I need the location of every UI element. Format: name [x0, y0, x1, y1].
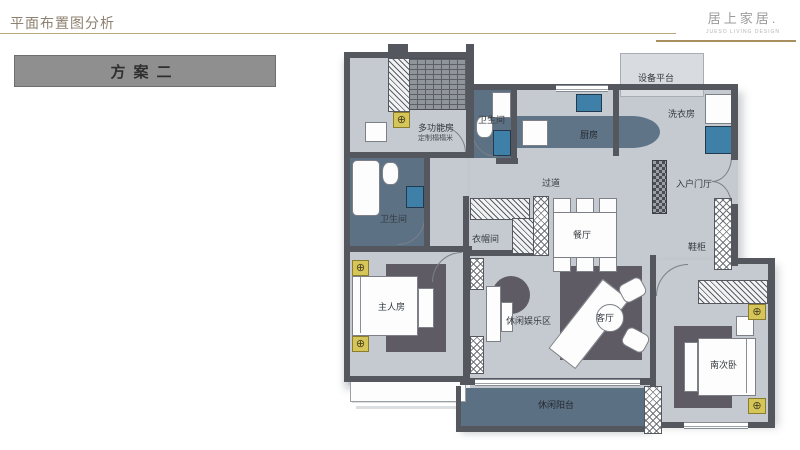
shoe-cabinet [714, 198, 732, 270]
label-balcony: 休闲阳台 [538, 398, 574, 411]
lamp-icon: ⊕ [393, 112, 410, 128]
wall [388, 44, 408, 53]
brand-subtitle: JUESO LIVING DESIGN [688, 29, 798, 35]
balcony-column [644, 386, 662, 434]
cloak-closet [512, 218, 534, 254]
label-laundry: 洗衣房 [668, 107, 695, 120]
sink [493, 130, 511, 156]
cabinet-strip [470, 336, 484, 374]
label-multi-function-sub: 定制榻榻米 [418, 133, 453, 143]
wall [613, 86, 619, 156]
label-kitchen: 厨房 [580, 128, 598, 141]
label-entry-hall: 入户门厅 [676, 177, 712, 190]
label-corridor: 过道 [542, 176, 560, 189]
bathtub [352, 160, 380, 216]
window [475, 379, 640, 386]
label-dining: 餐厅 [573, 228, 591, 241]
partition-screen [652, 160, 667, 214]
wall [456, 386, 461, 430]
slide: 平面布置图分析 居上家居. JUESO LIVING DESIGN 方案二 [0, 0, 800, 450]
wall [463, 196, 469, 256]
window [556, 85, 608, 92]
bench [684, 342, 698, 392]
dining-chair [576, 257, 594, 272]
cloak-closet [470, 198, 530, 220]
wall [496, 158, 518, 164]
wall [456, 426, 648, 432]
side-table [365, 122, 387, 142]
washer [705, 126, 732, 154]
building-outline [356, 406, 460, 409]
label-bath-master: 卫生间 [380, 212, 407, 225]
stove [522, 120, 548, 146]
piano [486, 286, 501, 342]
label-equipment-platform: 设备平台 [638, 71, 674, 84]
label-leisure-zone: 休闲娱乐区 [506, 314, 551, 327]
brand-name: 居上家居. [688, 8, 798, 27]
brand-logo: 居上家居. JUESO LIVING DESIGN [688, 8, 798, 35]
wall [344, 376, 470, 382]
scheme-badge: 方案二 [14, 55, 276, 87]
dining-chair [576, 198, 594, 213]
label-shoe-cabinet: 鞋柜 [688, 240, 706, 253]
bed-headboard [360, 277, 361, 333]
wall [768, 258, 775, 428]
lamp-icon: ⊕ [352, 336, 369, 352]
header-divider [0, 33, 676, 34]
sink [406, 186, 424, 208]
wall [511, 86, 517, 164]
lamp-icon: ⊕ [748, 304, 766, 320]
cabinet-strip [470, 258, 484, 290]
bay-window [350, 380, 466, 402]
label-master-bedroom: 主人房 [378, 300, 405, 313]
wardrobe [388, 58, 410, 112]
wall [344, 52, 350, 382]
wall [463, 250, 470, 385]
dryer [705, 94, 732, 124]
lamp-icon: ⊕ [352, 260, 369, 276]
wall [731, 204, 738, 266]
dining-chair [553, 198, 571, 213]
wall [344, 152, 474, 158]
window [684, 422, 748, 429]
wall [344, 246, 472, 252]
dining-chair [553, 257, 571, 272]
dining-chair [599, 257, 617, 272]
brand-divider [656, 40, 796, 42]
toilet [382, 162, 399, 185]
label-bath-top: 卫生间 [478, 113, 505, 126]
kitchen-sink [576, 94, 602, 112]
tatami-bed [408, 58, 468, 110]
label-living-room: 客厅 [596, 311, 614, 324]
page-title: 平面布置图分析 [10, 13, 115, 33]
label-south-bedroom: 南次卧 [710, 358, 737, 371]
bench [418, 288, 434, 328]
dining-chair [599, 198, 617, 213]
wall [731, 84, 738, 160]
label-cloakroom: 衣帽间 [472, 232, 499, 245]
wardrobe [698, 280, 768, 304]
bed-headboard [746, 339, 747, 393]
wall [424, 152, 430, 252]
sideboard [533, 196, 549, 256]
wall [466, 44, 474, 158]
lamp-icon: ⊕ [748, 398, 766, 414]
